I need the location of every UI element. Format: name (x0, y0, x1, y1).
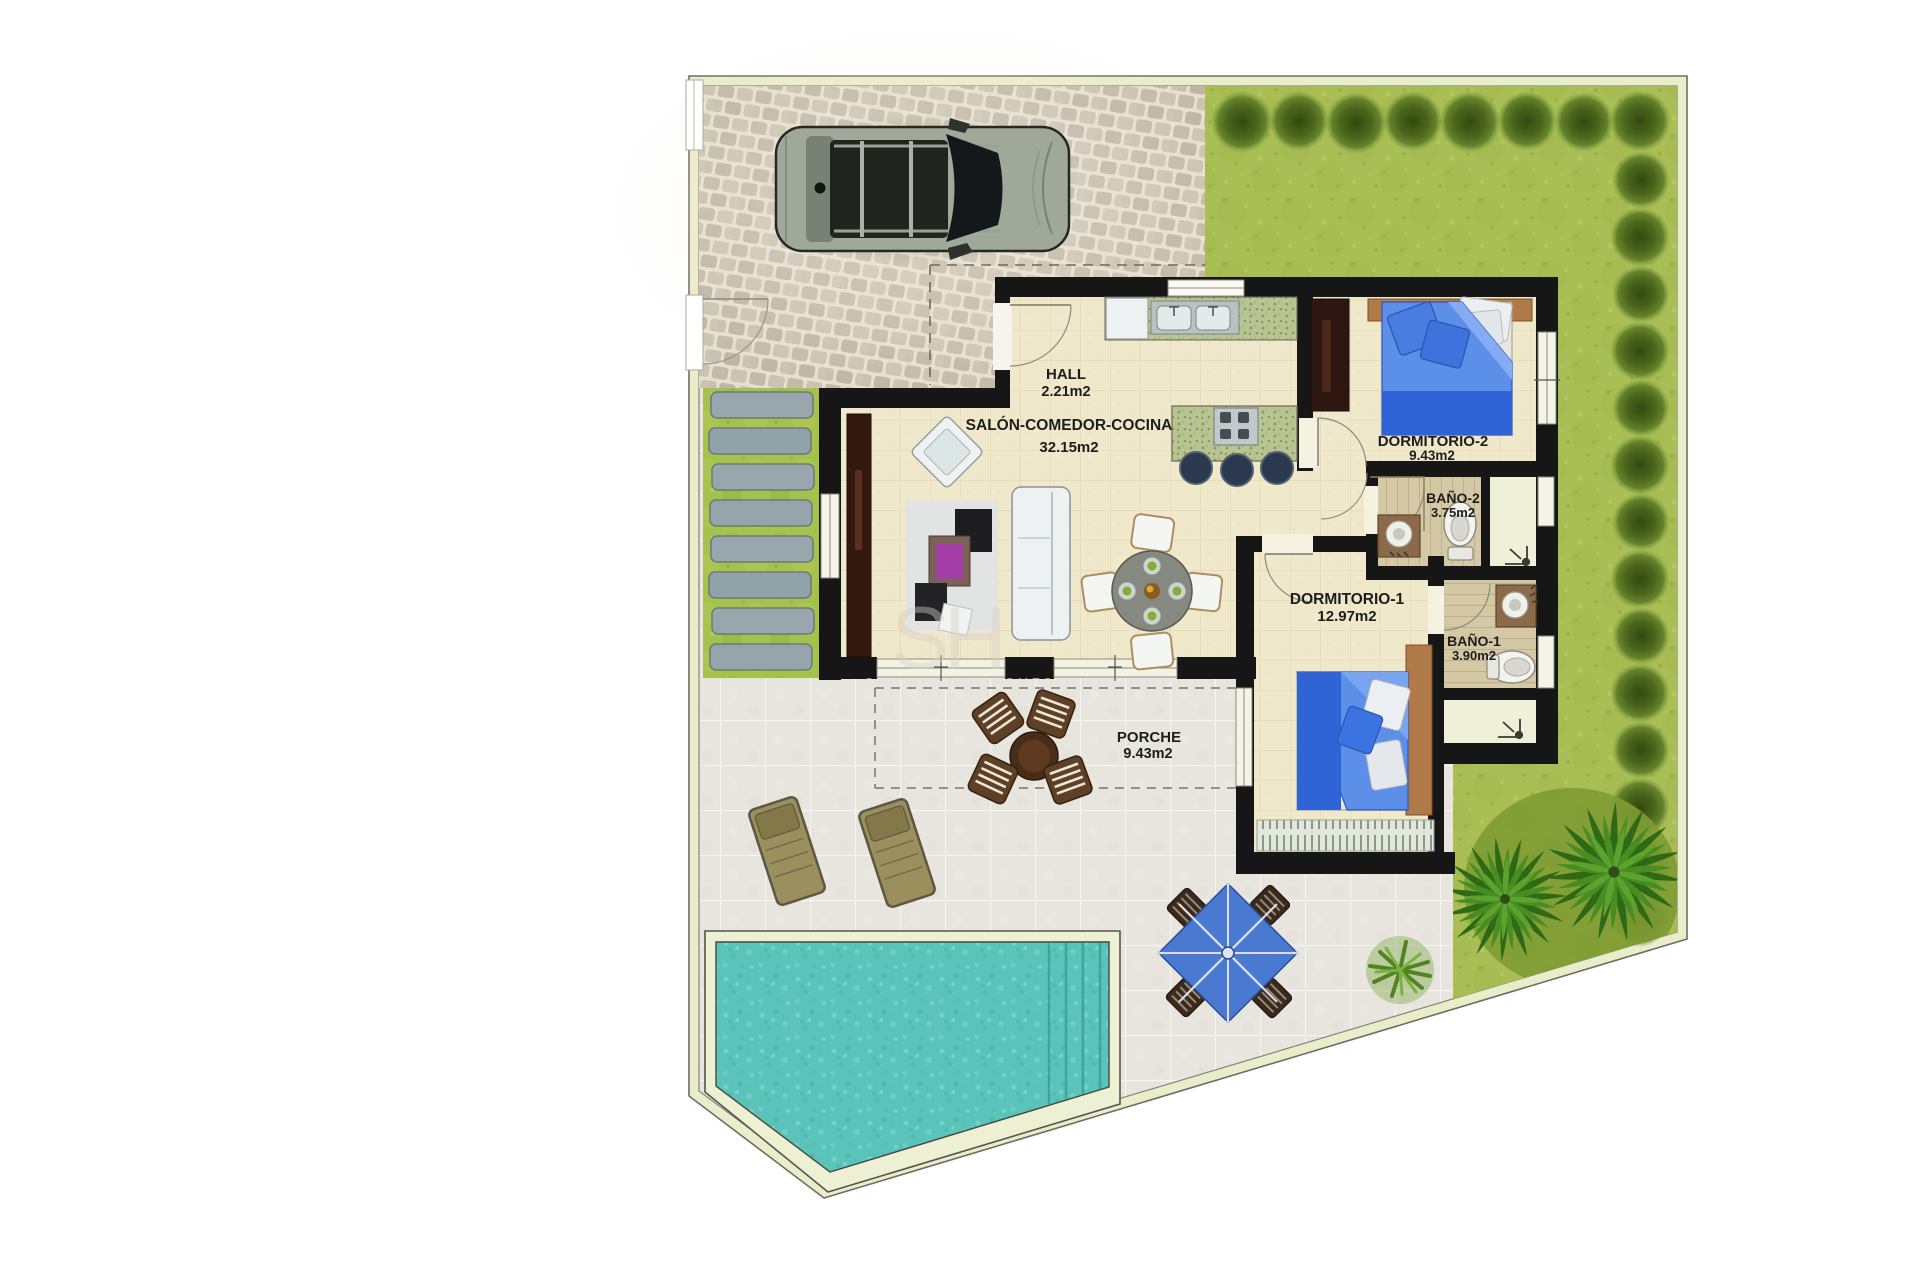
svg-text:SH: SH (891, 588, 1001, 687)
svg-text:3.90m2: 3.90m2 (1452, 648, 1496, 663)
svg-text:DORMITORIO-1: DORMITORIO-1 (1290, 591, 1405, 608)
svg-text:32.15m2: 32.15m2 (1039, 439, 1098, 456)
svg-text:PORCHE: PORCHE (1117, 729, 1181, 746)
svg-text:SALÓN-COMEDOR-COCINA: SALÓN-COMEDOR-COCINA (966, 416, 1173, 434)
svg-text:BAÑO-2: BAÑO-2 (1426, 489, 1480, 506)
svg-text:HALL: HALL (1046, 366, 1086, 383)
svg-text:3.75m2: 3.75m2 (1431, 505, 1475, 520)
svg-text:SINGULARITY HOMES: SINGULARITY HOMES (865, 676, 1055, 690)
svg-text:9.43m2: 9.43m2 (1123, 746, 1172, 762)
svg-text:2.21m2: 2.21m2 (1041, 384, 1090, 400)
svg-text:9.43m2: 9.43m2 (1409, 448, 1455, 463)
svg-text:BAÑO-1: BAÑO-1 (1447, 632, 1501, 649)
svg-text:12.97m2: 12.97m2 (1317, 608, 1376, 625)
